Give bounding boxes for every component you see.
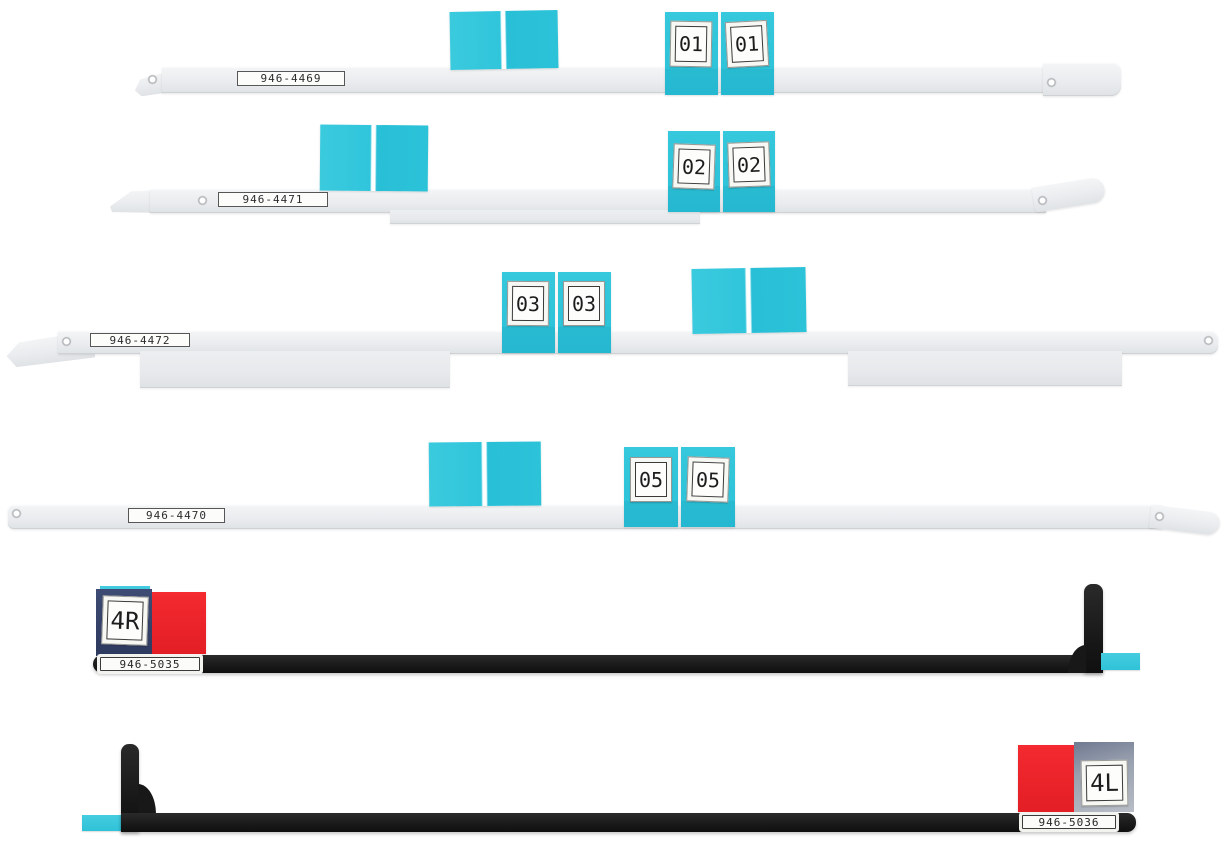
strip-step <box>848 351 1122 386</box>
tab-number-label: 05 <box>686 456 730 502</box>
numbered-pull-tab: 02 <box>723 131 775 212</box>
corner-fillet <box>138 784 156 814</box>
mounting-hole <box>148 75 157 84</box>
tab-number: 02 <box>677 148 710 184</box>
mounting-hole <box>1155 512 1164 521</box>
part-number-label: 946-4470 <box>128 508 225 523</box>
mounting-hole <box>1038 196 1047 205</box>
numbered-pull-tab: 05 <box>624 447 678 527</box>
adhesive-strips-product-photo: 946-4469 01 01 946-4471 02 02 <box>0 0 1228 856</box>
tab-number: 4L <box>1086 765 1124 802</box>
tab-number-label: 4R <box>101 595 149 646</box>
tab-number-label: 4L <box>1081 760 1129 807</box>
part-number-label: 946-4469 <box>237 71 345 86</box>
strip-body-black <box>93 655 1103 673</box>
strip-step <box>390 210 700 224</box>
red-pull-tab <box>150 592 206 654</box>
tab-number: 05 <box>635 462 667 497</box>
mounting-hole <box>1047 78 1056 87</box>
mounting-hole <box>1204 336 1213 345</box>
tab-number: 03 <box>512 286 544 321</box>
numbered-pull-tab: 05 <box>681 447 735 527</box>
strip-step <box>140 351 450 388</box>
part-number-label: 946-5036 <box>1022 815 1116 829</box>
numbered-pull-tab: 03 <box>502 272 555 353</box>
adhesive-pull-tab-pair <box>450 10 559 70</box>
tab-number-label: 01 <box>725 20 769 68</box>
part-number-label: 946-4472 <box>90 333 190 347</box>
tab-number-label: 02 <box>727 141 771 187</box>
tab-number-label: 03 <box>563 281 605 326</box>
tab-number: 03 <box>568 286 600 321</box>
cyan-pull-tab <box>82 815 122 831</box>
numbered-pull-tab: 02 <box>668 131 720 212</box>
strip-end-right <box>1031 177 1106 213</box>
part-number-label: 946-4471 <box>218 192 328 207</box>
cyan-pull-tab <box>1101 653 1140 670</box>
tab-number: 05 <box>691 461 724 497</box>
numbered-pull-tab: 03 <box>558 272 611 353</box>
strip-body-black <box>121 813 1136 832</box>
mounting-hole <box>198 196 207 205</box>
adhesive-pull-tab-pair <box>429 442 542 507</box>
tab-number-label: 01 <box>670 21 713 68</box>
red-pull-tab <box>1018 745 1076 812</box>
numbered-pull-tab: 01 <box>721 12 774 95</box>
adhesive-pull-tab-pair <box>320 125 429 192</box>
adhesive-pull-tab-pair <box>691 267 806 334</box>
tab-number-label: 03 <box>507 281 549 326</box>
mounting-hole <box>62 337 71 346</box>
mounting-hole <box>12 509 21 518</box>
tab-number: 01 <box>675 26 708 63</box>
tab-number: 4R <box>106 600 143 640</box>
tab-number-label: 02 <box>672 143 716 189</box>
numbered-pull-tab: 01 <box>665 12 718 95</box>
tab-number: 02 <box>732 146 765 182</box>
tab-number-label: 05 <box>630 457 672 502</box>
corner-fillet <box>1068 645 1086 673</box>
tab-number: 01 <box>730 25 764 63</box>
part-number-label: 946-5035 <box>100 657 200 671</box>
